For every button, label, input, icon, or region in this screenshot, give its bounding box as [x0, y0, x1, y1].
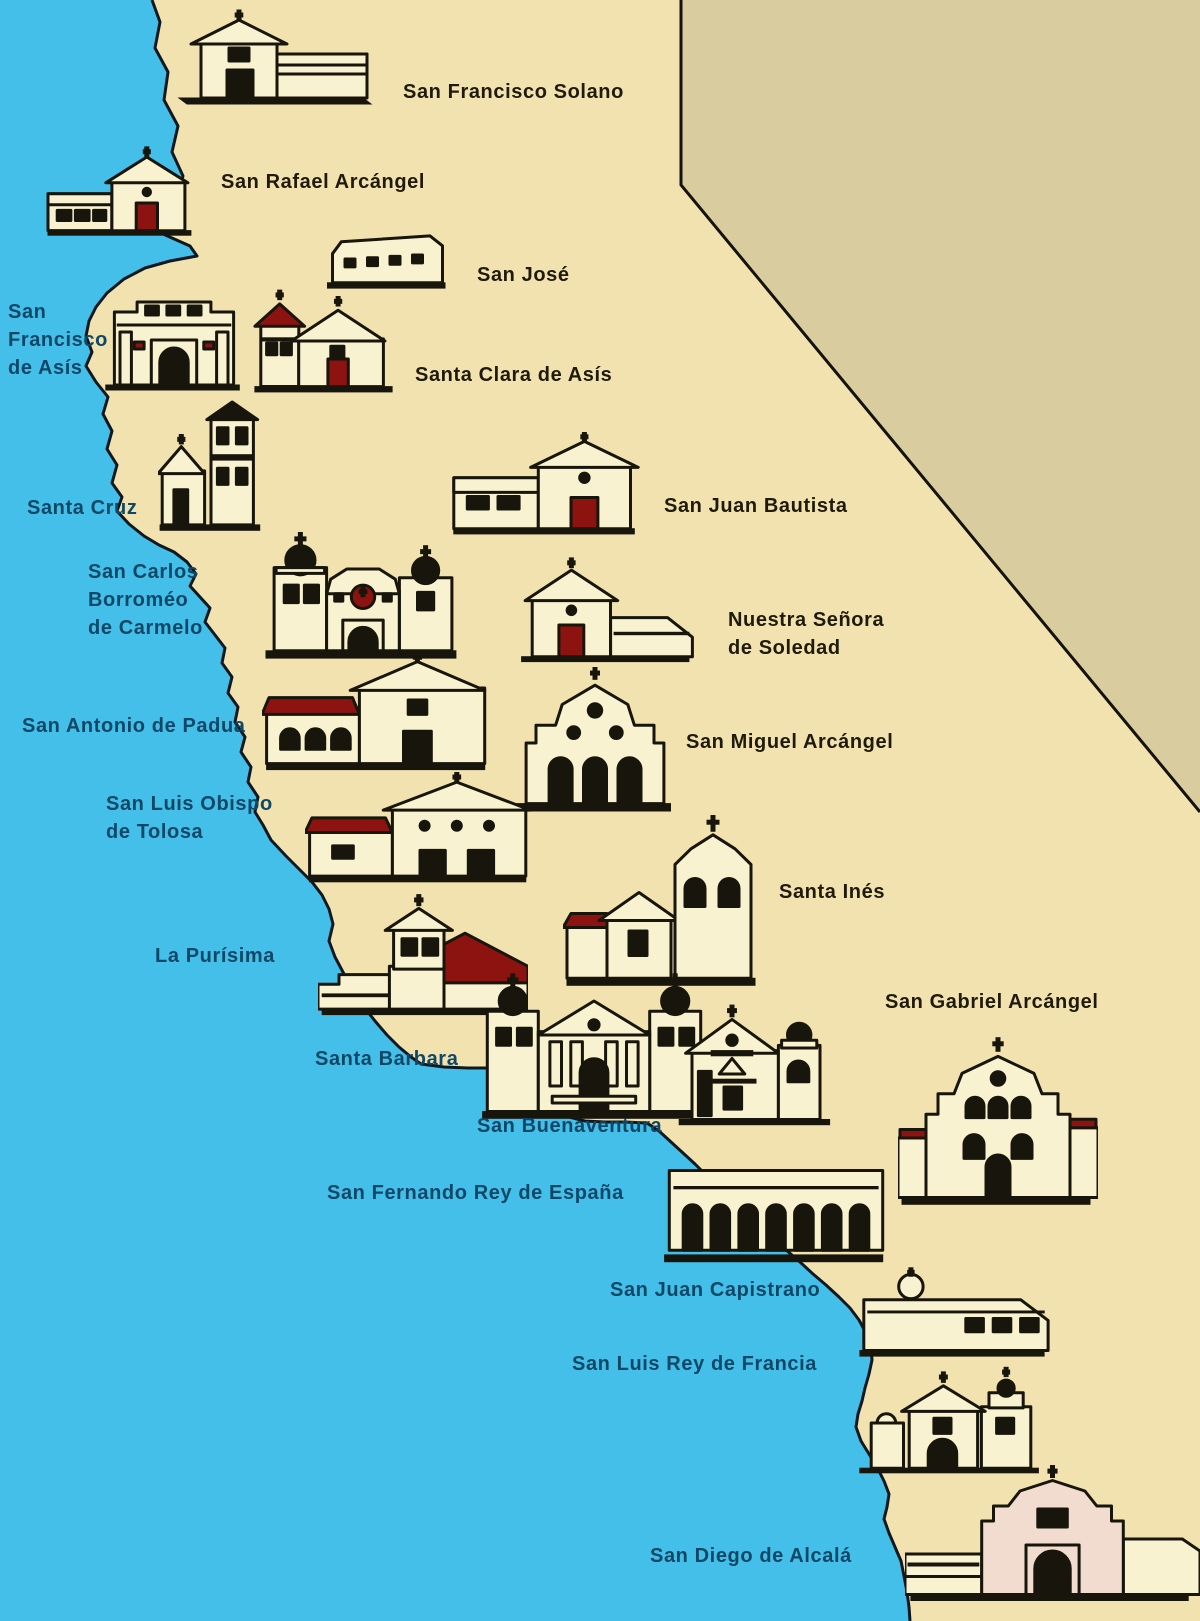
mission-san-francisco-de-asis	[103, 292, 245, 392]
mission-icon-san-juan-capistrano	[856, 1264, 1052, 1358]
mission-icon-san-francisco-solano	[175, 8, 375, 108]
mission-san-jose	[325, 226, 450, 292]
mission-nuestra-senora-de-soledad	[518, 542, 696, 664]
mission-icon-nuestra-senora-de-soledad	[518, 542, 696, 664]
mission-san-diego-de-alcala	[905, 1452, 1200, 1602]
mission-icon-santa-clara-de-asis	[252, 288, 398, 394]
mission-icon-san-diego-de-alcala	[905, 1452, 1200, 1602]
mission-icon-san-antonio-de-padua	[262, 652, 494, 772]
mission-san-antonio-de-padua	[262, 652, 494, 772]
mission-icon-san-francisco-de-asis	[103, 292, 245, 392]
mission-san-carlos-borromeo-de-carmelo	[262, 515, 464, 661]
mission-icon-san-gabriel-arcangel	[898, 1036, 1098, 1206]
mission-icon-san-buenaventura	[676, 996, 836, 1126]
mission-icon-san-carlos-borromeo-de-carmelo	[262, 515, 464, 661]
mission-san-fernando-rey-de-espana	[660, 1150, 892, 1264]
mission-santa-cruz	[158, 398, 264, 533]
mission-san-buenaventura	[676, 996, 836, 1126]
mission-san-juan-capistrano	[856, 1264, 1052, 1358]
mission-santa-clara-de-asis	[252, 288, 398, 394]
mission-san-rafael-arcangel	[45, 146, 197, 238]
mission-icon-san-fernando-rey-de-espana	[660, 1150, 892, 1264]
mission-icon-san-miguel-arcangel	[513, 666, 677, 814]
mission-icon-san-jose	[325, 226, 450, 292]
mission-san-gabriel-arcangel	[898, 1036, 1098, 1206]
mission-icon-san-juan-bautista	[450, 432, 642, 536]
mission-icon-san-rafael-arcangel	[45, 146, 197, 238]
mission-icon-san-luis-obispo-de-tolosa	[305, 772, 535, 884]
mission-san-juan-bautista	[450, 432, 642, 536]
mission-icon-santa-cruz	[158, 398, 264, 533]
mission-san-miguel-arcangel	[513, 666, 677, 814]
mission-san-luis-obispo-de-tolosa	[305, 772, 535, 884]
mission-san-francisco-solano	[175, 8, 375, 108]
california-missions-map: San Francisco SolanoSan Rafael ArcángelS…	[0, 0, 1200, 1621]
